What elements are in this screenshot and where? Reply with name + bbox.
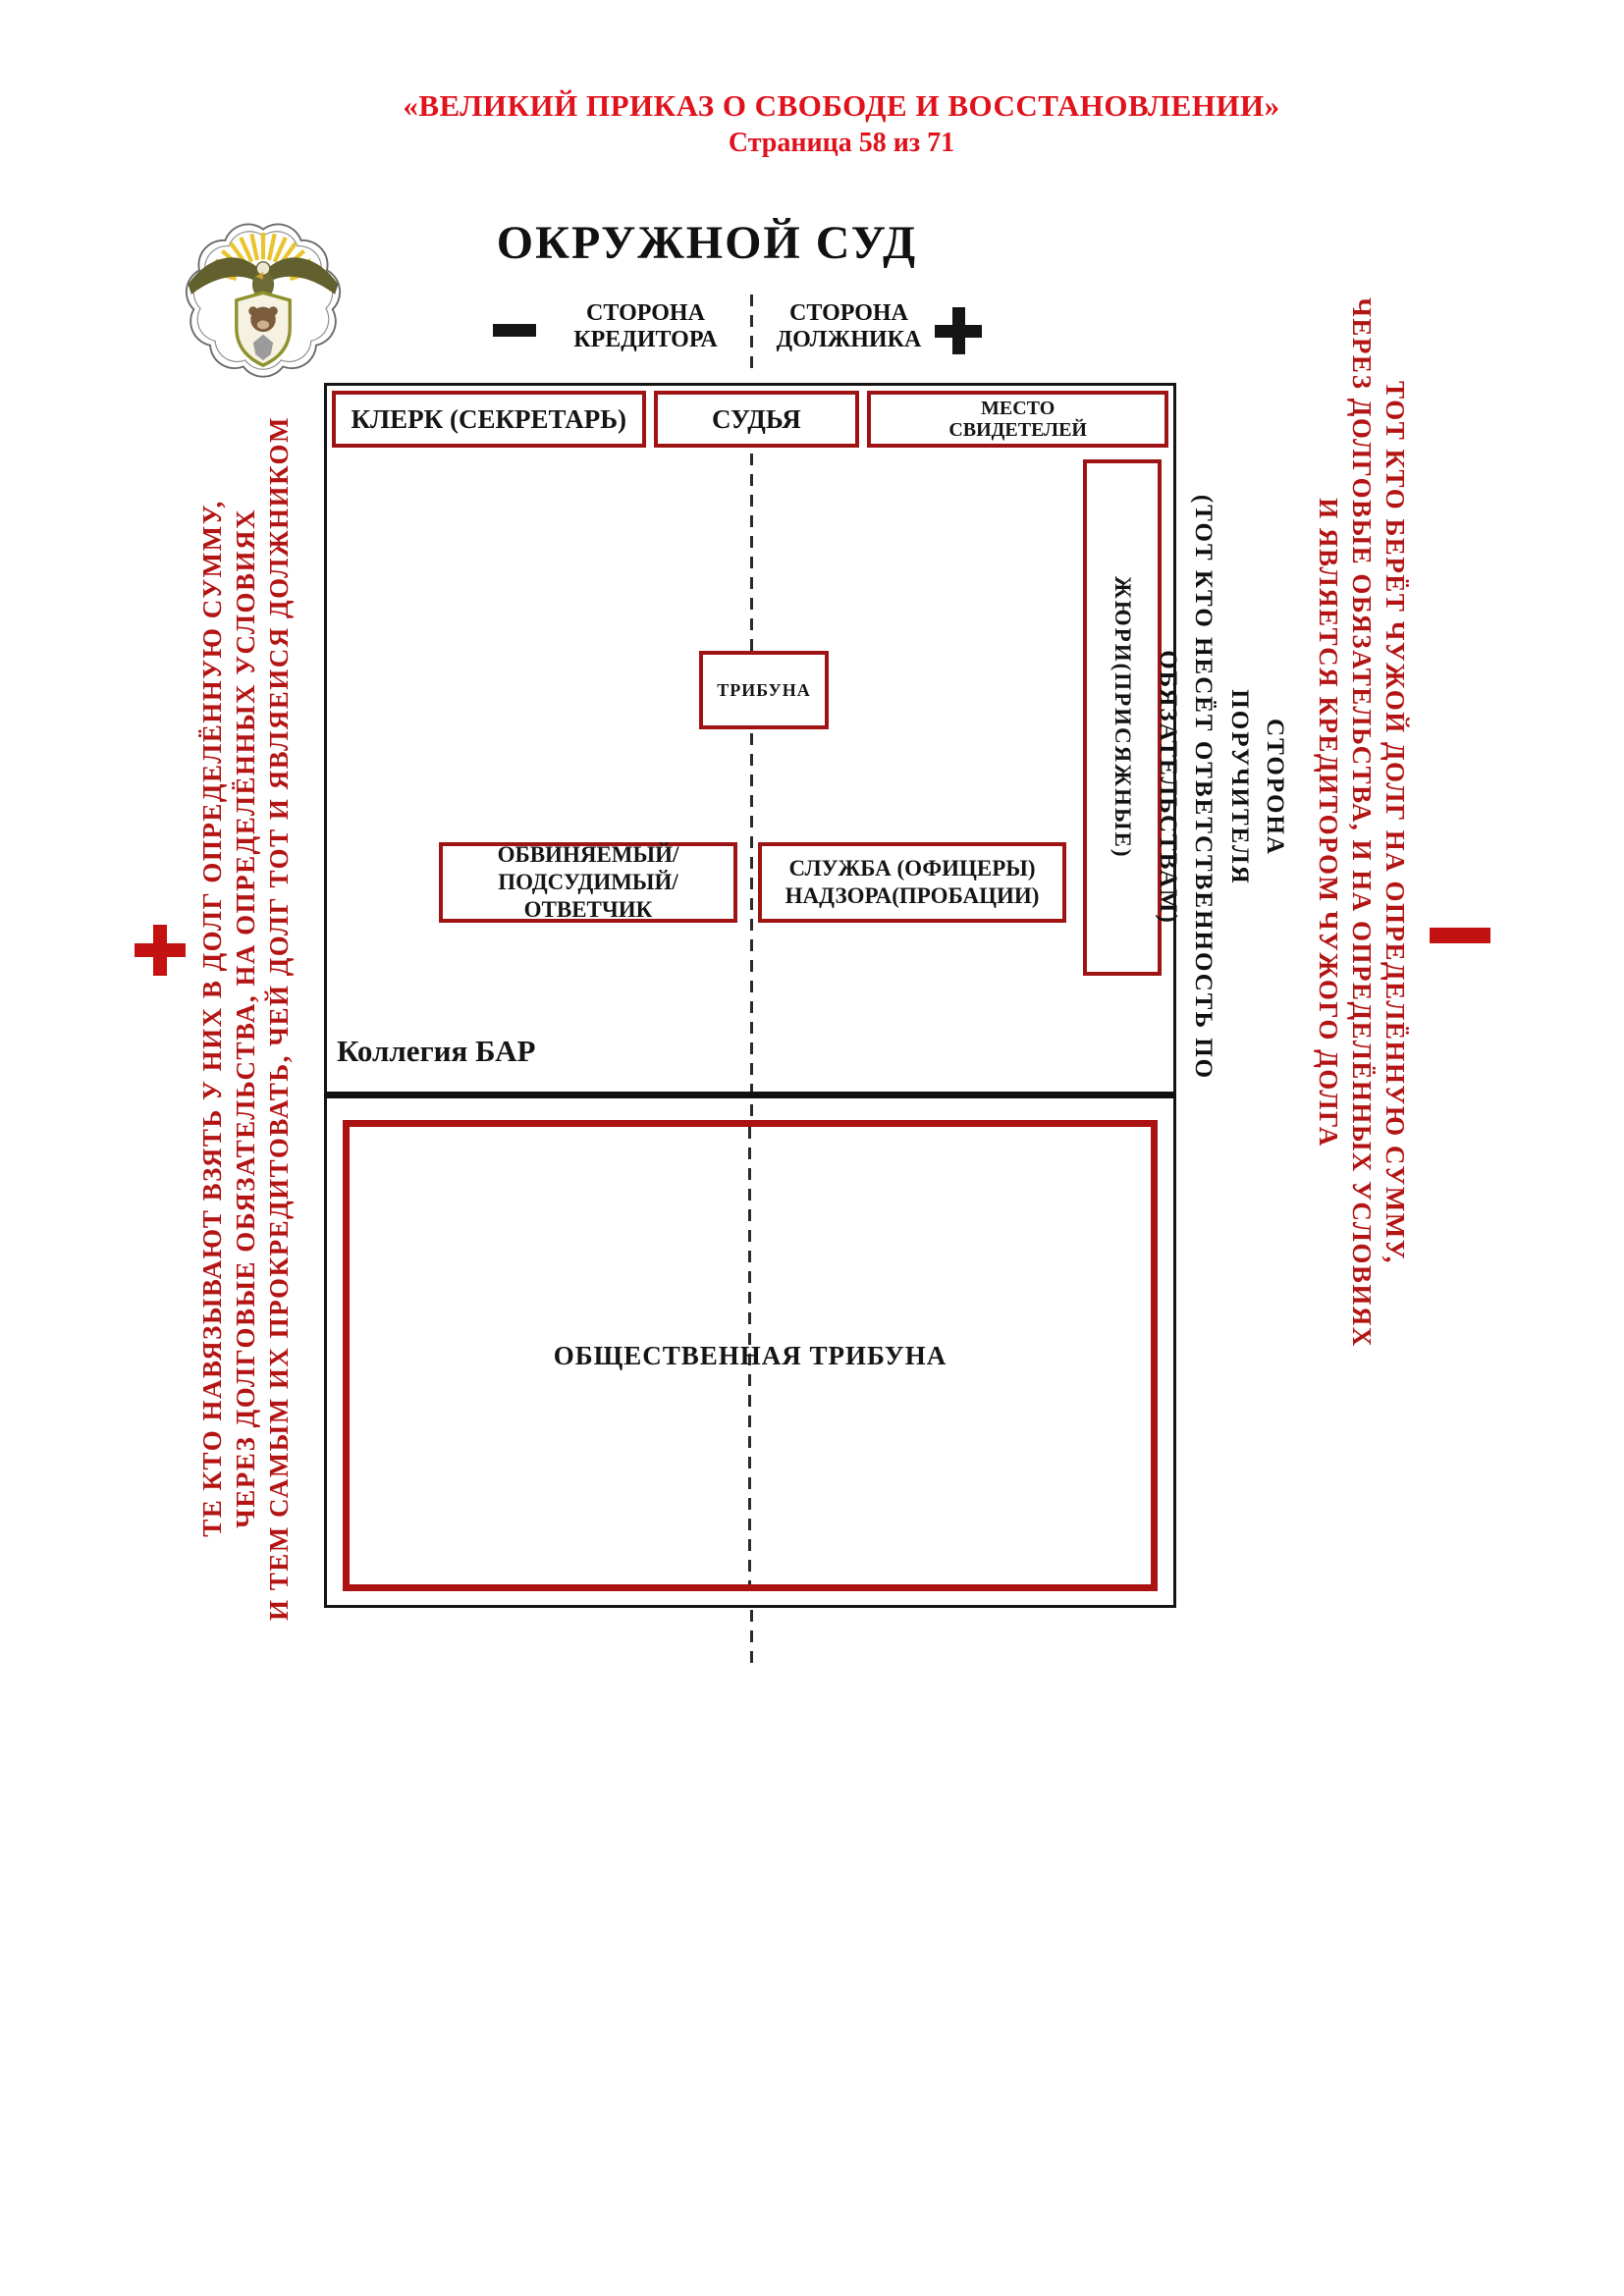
bench-row: КЛЕРК (СЕКРЕТАРЬ) СУДЬЯ МЕСТО СВИДЕТЕЛЕЙ	[332, 391, 1168, 448]
document-title: «ВЕЛИКИЙ ПРИКАЗ О СВОБОДЕ И ВОССТАНОВЛЕН…	[59, 88, 1624, 124]
debtor-note-line: И ЯВЛЯЕТСЯ КРЕДИТОРОМ ЧУЖОГО ДОЛГА	[1312, 273, 1345, 1372]
witness-stand-box: МЕСТО СВИДЕТЕЛЕЙ	[867, 391, 1168, 448]
public-tribune-box: ОБЩЕСТВЕННАЯ ТРИБУНА	[343, 1120, 1158, 1591]
guarantor-note-line: СТОРОНА	[1257, 365, 1292, 1209]
tribune-box: ТРИБУНА	[699, 651, 829, 729]
clerk-box: КЛЕРК (СЕКРЕТАРЬ)	[332, 391, 646, 448]
judge-label: СУДЬЯ	[712, 404, 801, 435]
creditor-note-line: ТЕ КТО НАВЯЗЫВАЮТ ВЗЯТЬ У НИХ В ДОЛГ ОПР…	[196, 407, 230, 1629]
jury-label: ЖЮРИ(ПРИСЯЖНЫЕ)	[1110, 576, 1135, 859]
creditor-margin-note: ТЕ КТО НАВЯЗЫВАЮТ ВЗЯТЬ У НИХ В ДОЛГ ОПР…	[196, 407, 302, 1629]
creditor-note-line: И ТЕМ САМЫМ ИХ ПРОКРЕДИТОВАТЬ, ЧЕЙ ДОЛГ …	[263, 407, 297, 1629]
minus-icon-creditor	[493, 324, 536, 337]
creditor-note-line: ЧЕРЕЗ ДОЛГОВЫЕ ОБЯЗАТЕЛЬСТВА, НА ОПРЕДЕЛ…	[230, 407, 263, 1629]
center-dashed-line-upper	[750, 454, 753, 651]
page-indicator: Страница 58 из 71	[59, 128, 1624, 159]
witness-stand-label: МЕСТО СВИДЕТЕЛЕЙ	[948, 398, 1087, 442]
center-dashed-line-middle	[750, 733, 753, 1120]
guarantor-note-line: (ТОТ КТО НЕСЁТ ОТВЕТСТВЕННОСТЬ ПО ОБЯЗАТ…	[1150, 365, 1221, 1209]
debtor-side-label: СТОРОНА ДОЛЖНИКА	[758, 300, 940, 353]
clerk-label: КЛЕРК (СЕКРЕТАРЬ)	[351, 404, 626, 435]
plus-icon-debtor	[935, 307, 982, 354]
plus-icon-left-margin	[135, 925, 186, 976]
courtroom-diagram: КЛЕРК (СЕКРЕТАРЬ) СУДЬЯ МЕСТО СВИДЕТЕЛЕЙ…	[324, 383, 1176, 1608]
center-dashed-line-bottom	[750, 1610, 753, 1671]
minus-icon-right-margin	[1430, 928, 1490, 943]
judge-box: СУДЬЯ	[654, 391, 860, 448]
debtor-note-line: ТОТ КТО БЕРЁТ ЧУЖОЙ ДОЛГ НА ОПРЕДЕЛЁННУЮ…	[1378, 273, 1411, 1372]
probation-label: СЛУЖБА (ОФИЦЕРЫ) НАДЗОРА(ПРОБАЦИИ)	[785, 855, 1040, 910]
bar-college-label: Коллегия БАР	[337, 1034, 535, 1069]
probation-box: СЛУЖБА (ОФИЦЕРЫ) НАДЗОРА(ПРОБАЦИИ)	[758, 842, 1066, 923]
guarantor-note-line: ПОРУЧИТЕЛЯ	[1221, 365, 1257, 1209]
document-page: «ВЕЛИКИЙ ПРИКАЗ О СВОБОДЕ И ВОССТАНОВЛЕН…	[0, 0, 1624, 2296]
tribune-label: ТРИБУНА	[717, 680, 810, 701]
guarantor-side-note: СТОРОНА ПОРУЧИТЕЛЯ (ТОТ КТО НЕСЁТ ОТВЕТС…	[1182, 365, 1292, 1209]
debtor-note-line: ЧЕРЕЗ ДОЛГОВЫЕ ОБЯЗАТЕЛЬСТВА, И НА ОПРЕД…	[1345, 273, 1379, 1372]
creditor-side-label: СТОРОНА КРЕДИТОРА	[545, 300, 746, 353]
bar-divider-line	[324, 1092, 1176, 1098]
court-title: ОКРУЖНОЙ СУД	[280, 216, 1134, 270]
defendant-box: ОБВИНЯЕМЫЙ/ ПОДСУДИМЫЙ/ОТВЕТЧИК	[439, 842, 737, 923]
defendant-label: ОБВИНЯЕМЫЙ/ ПОДСУДИМЫЙ/ОТВЕТЧИК	[443, 841, 733, 924]
debtor-margin-note: ТОТ КТО БЕРЁТ ЧУЖОЙ ДОЛГ НА ОПРЕДЕЛЁННУЮ…	[1308, 273, 1411, 1372]
center-dashed-line-top	[750, 294, 753, 377]
public-tribune-label: ОБЩЕСТВЕННАЯ ТРИБУНА	[554, 1341, 947, 1371]
